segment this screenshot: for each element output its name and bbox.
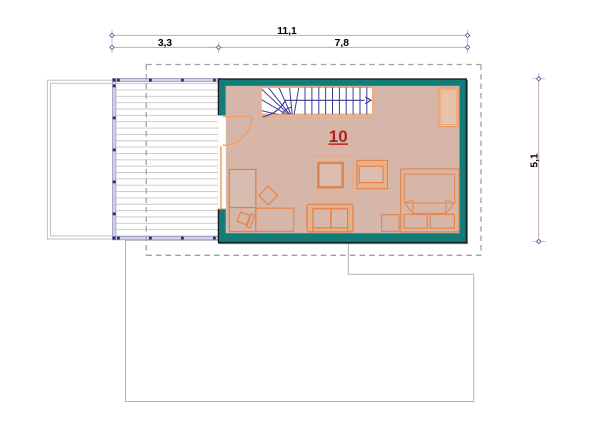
svg-text:11,1: 11,1 xyxy=(277,26,297,37)
svg-text:3,3: 3,3 xyxy=(158,38,173,49)
svg-text:7,8: 7,8 xyxy=(335,38,350,49)
svg-text:5,1: 5,1 xyxy=(529,153,540,168)
svg-text:10: 10 xyxy=(329,127,348,146)
